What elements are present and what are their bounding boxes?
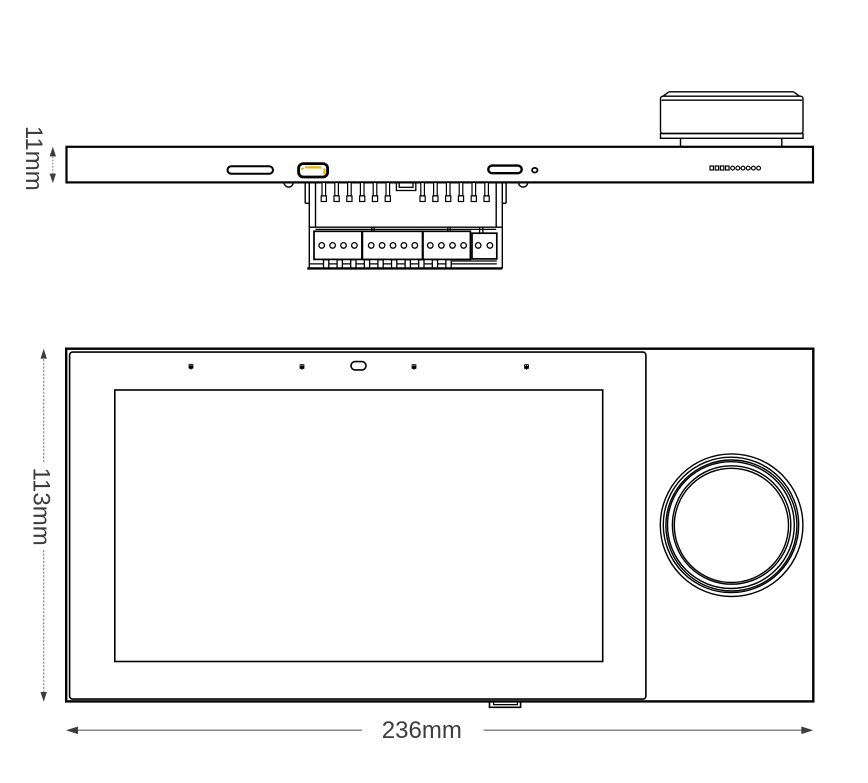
svg-text:11mm: 11mm — [20, 126, 47, 191]
svg-text:236mm: 236mm — [382, 717, 462, 744]
svg-text:113mm: 113mm — [28, 467, 55, 545]
